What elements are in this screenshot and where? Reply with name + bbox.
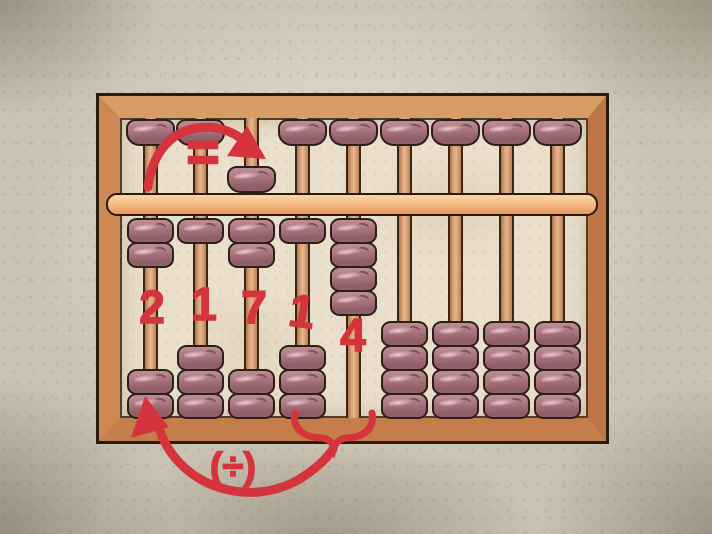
abacus-upper-bead [329, 119, 378, 146]
abacus-lower-bead [279, 218, 326, 244]
abacus-upper-bead [227, 166, 276, 193]
abacus-lower-bead [228, 393, 275, 419]
abacus-upper-bead [380, 119, 429, 146]
abacus-lower-bead [381, 345, 428, 371]
abacus-lower-bead [534, 393, 581, 419]
illustration-canvas: 21714 = (÷) [0, 0, 712, 534]
abacus-lower-bead [177, 393, 224, 419]
abacus-lower-bead [483, 393, 530, 419]
abacus-lower-bead [381, 393, 428, 419]
abacus-lower-bead [177, 369, 224, 395]
abacus-lower-bead [483, 345, 530, 371]
abacus-lower-bead [534, 369, 581, 395]
abacus-upper-bead [431, 119, 480, 146]
column-digit-label: 7 [229, 284, 279, 330]
abacus-lower-bead [177, 218, 224, 244]
abacus-lower-bead [127, 393, 174, 419]
abacus-lower-bead [127, 242, 174, 268]
abacus-lower-bead [228, 369, 275, 395]
abacus-lower-bead [177, 345, 224, 371]
abacus-lower-bead [330, 266, 377, 292]
abacus-lower-bead [432, 345, 479, 371]
abacus-lower-bead [127, 369, 174, 395]
abacus-lower-bead [279, 345, 326, 371]
equals-symbol: = [173, 124, 233, 180]
abacus-lower-bead [279, 393, 326, 419]
abacus-lower-bead [432, 321, 479, 347]
abacus-lower-bead [330, 218, 377, 244]
abacus-lower-bead [432, 369, 479, 395]
abacus-lower-bead [381, 321, 428, 347]
abacus-lower-bead [279, 369, 326, 395]
abacus-lower-bead [228, 242, 275, 268]
abacus-lower-bead [534, 321, 581, 347]
abacus-lower-bead [483, 321, 530, 347]
abacus-upper-bead [126, 119, 175, 146]
column-digit-label: 4 [328, 312, 378, 358]
abacus-lower-bead [330, 242, 377, 268]
division-symbol: (÷) [188, 448, 278, 486]
abacus-upper-bead [533, 119, 582, 146]
abacus-lower-bead [432, 393, 479, 419]
abacus-lower-bead [381, 369, 428, 395]
abacus-lower-bead [228, 218, 275, 244]
column-digit-label: 1 [274, 285, 330, 338]
abacus-upper-bead [482, 119, 531, 146]
abacus-lower-bead [127, 218, 174, 244]
abacus-lower-bead [534, 345, 581, 371]
abacus-lower-bead [483, 369, 530, 395]
column-digit-label: 1 [179, 281, 229, 327]
column-digit-label: 2 [127, 284, 177, 330]
abacus-upper-bead [278, 119, 327, 146]
abacus-beam [106, 193, 598, 216]
